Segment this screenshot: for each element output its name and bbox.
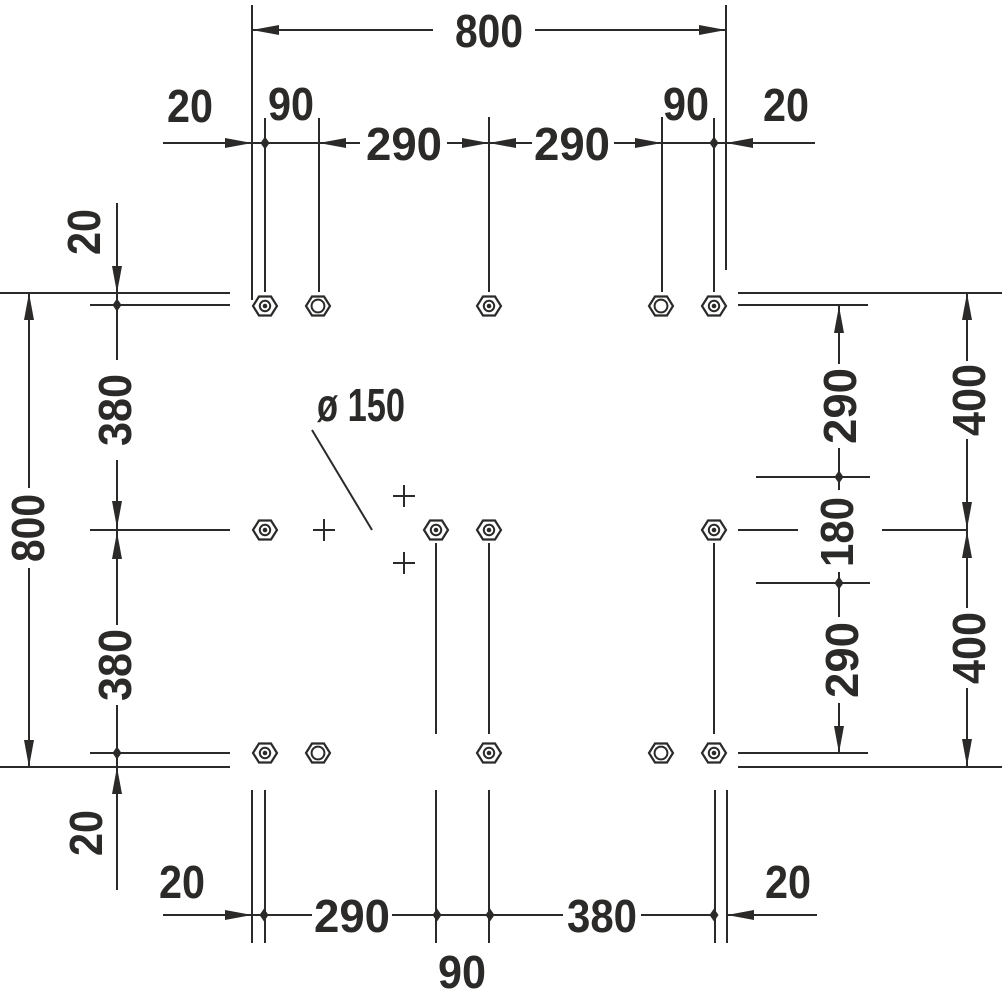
- dim-left-row-lower: 380: [89, 629, 141, 701]
- dim-drain-diameter: ø 150: [317, 379, 405, 431]
- dimension-arrowhead: [112, 501, 122, 528]
- dimension-arrowhead: [112, 767, 122, 794]
- hex-bolt-filled-icon: [702, 744, 726, 763]
- dim-right-half-lower: 400: [943, 612, 995, 684]
- drain-position-markers: [313, 485, 415, 574]
- dimension-arrowhead: [962, 293, 972, 320]
- dimension-arrowhead: [225, 138, 252, 148]
- hex-bolt-filled-icon: [253, 521, 277, 540]
- dim-bottom-span-left: 290: [314, 890, 390, 942]
- dimension-lines: [29, 30, 967, 915]
- dim-bottom-offset-right: 20: [765, 856, 811, 908]
- dimension-arrowhead: [699, 25, 726, 35]
- hex-bolt-filled-icon: [253, 744, 277, 763]
- drawing-canvas: 800 20 90 290 290 90 20 20 380 800 380 2…: [0, 0, 1002, 1002]
- dim-left-offset-top: 20: [58, 209, 110, 255]
- dim-top-mid-left: 290: [366, 118, 442, 170]
- hex-bolt-open-icon: [306, 744, 330, 763]
- dimension-arrowhead: [24, 740, 34, 767]
- hex-bolt-open-icon: [649, 297, 673, 316]
- cross-marker-icon: [393, 552, 415, 574]
- dim-right-half-upper: 400: [943, 364, 995, 436]
- dimension-diamond: [433, 909, 442, 922]
- hex-bolt-open-icon: [306, 297, 330, 316]
- dim-right-upper: 290: [814, 368, 866, 444]
- hex-bolt-filled-icon: [477, 297, 501, 316]
- dim-top-mid-right: 290: [534, 118, 610, 170]
- cross-marker-icon: [393, 485, 415, 507]
- dim-left-offset-bottom: 20: [60, 810, 112, 856]
- dim-bottom-span-center: 90: [438, 946, 486, 998]
- dimension-arrowhead: [635, 138, 662, 148]
- hex-bolt-filled-icon: [477, 521, 501, 540]
- extension-lines: [252, 5, 727, 943]
- dim-bottom-offset-left: 20: [159, 856, 205, 908]
- dim-top-pair-left: 90: [268, 78, 314, 130]
- dimension-arrowhead: [962, 502, 972, 529]
- dim-top-offset-left: 20: [167, 80, 213, 132]
- cross-marker-icon: [313, 519, 335, 541]
- dim-top-offset-right: 20: [763, 79, 809, 131]
- dimension-arrowhead: [834, 306, 844, 333]
- dim-right-lower: 290: [816, 622, 868, 698]
- dimension-arrowhead: [225, 910, 252, 920]
- dimension-arrowhead: [727, 910, 754, 920]
- dimension-arrowhead: [112, 266, 122, 293]
- dimension-arrowhead: [252, 25, 279, 35]
- dimension-diamond: [835, 577, 844, 590]
- dimension-arrowhead: [319, 138, 346, 148]
- dimension-diamond: [486, 909, 495, 922]
- dimension-arrowhead: [834, 726, 844, 753]
- hex-bolt-filled-icon: [702, 521, 726, 540]
- dimension-diamond: [710, 909, 719, 922]
- dim-bottom-span-right: 380: [567, 890, 637, 942]
- dim-top-overall: 800: [455, 5, 523, 57]
- dimension-diamond: [113, 299, 122, 312]
- dimension-arrowhead: [489, 138, 516, 148]
- dimension-drawing: 800 20 90 290 290 90 20 20 380 800 380 2…: [0, 0, 1002, 1002]
- hex-bolt-filled-icon: [702, 297, 726, 316]
- hex-bolt-filled-icon: [424, 521, 448, 540]
- dimension-diamond: [835, 471, 844, 484]
- dimension-arrowhead: [962, 739, 972, 766]
- dimension-arrowhead: [462, 138, 489, 148]
- hex-bolt-open-icon: [649, 744, 673, 763]
- dim-right-middle: 180: [811, 497, 863, 567]
- dimension-diamond: [710, 137, 719, 150]
- dimension-diamond: [113, 747, 122, 760]
- dimension-arrowhead: [112, 532, 122, 559]
- dimension-marks: [24, 25, 972, 922]
- dim-left-overall: 800: [2, 494, 54, 562]
- dim-top-pair-right: 90: [663, 78, 709, 130]
- dimension-diamond: [260, 909, 269, 922]
- dimension-labels: 800 20 90 290 290 90 20 20 380 800 380 2…: [2, 5, 995, 998]
- dimension-arrowhead: [962, 531, 972, 558]
- hex-bolt-filled-icon: [477, 744, 501, 763]
- drain-leader-line: [312, 430, 372, 530]
- dimension-arrowhead: [24, 293, 34, 320]
- dim-left-row-upper: 380: [89, 374, 141, 446]
- hex-bolt-filled-icon: [253, 297, 277, 316]
- dimension-diamond: [261, 137, 270, 150]
- dimension-arrowhead: [726, 138, 753, 148]
